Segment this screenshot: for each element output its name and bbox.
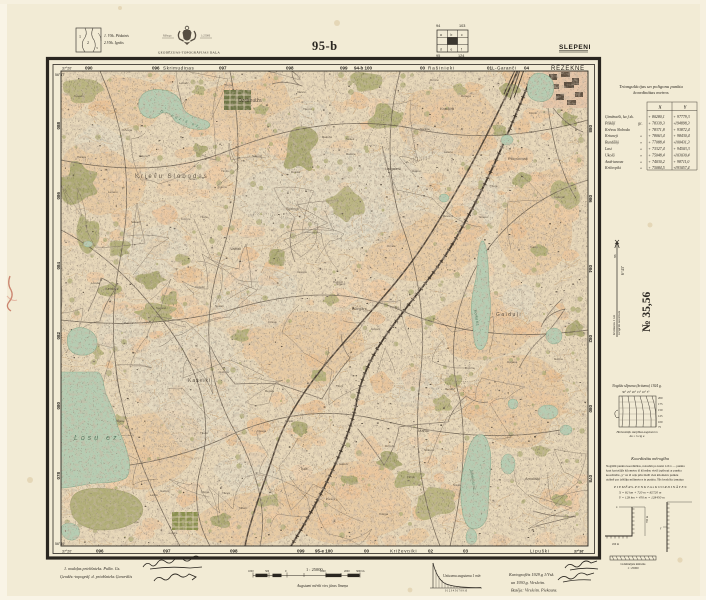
svg-text:+: +: [649, 115, 651, 119]
svg-text:Augstumi mērīti virs jūras līm: Augstumi mērīti virs jūras līmeņa: [296, 584, 348, 588]
svg-text:6°43': 6°43': [620, 266, 625, 275]
svg-text:200: 200: [658, 396, 663, 400]
svg-text:078: 078: [588, 475, 593, 483]
svg-text:080: 080: [588, 405, 593, 413]
svg-text:Rundāiķi: Rundāiķi: [604, 141, 619, 145]
svg-text:95: 95: [436, 54, 440, 58]
svg-text:Koordinātu mērogība: Koordinātu mērogība: [630, 456, 670, 461]
svg-text:da = h ctg a: da = h ctg a: [630, 434, 645, 438]
svg-text:86: 86: [613, 254, 617, 258]
svg-text:Bazēja: Virsleitn. Piekauns.: Bazēja: Virsleitn. Piekauns.: [511, 588, 557, 593]
svg-text:450 m: 450 m: [612, 543, 620, 546]
svg-text:+: +: [674, 160, 676, 164]
svg-text:Kartografēts 1929.g 1/Vsk.: Kartografēts 1929.g 1/Vsk.: [508, 572, 554, 577]
svg-text:e: e: [451, 48, 453, 52]
svg-text:097: 097: [219, 66, 227, 71]
svg-text:103: 103: [459, 24, 465, 28]
svg-text:Nogāžu slīpuma (kritumu) 1924: Nogāžu slīpuma (kritumu) 1924 g.: [611, 384, 662, 388]
svg-text:1000: 1000: [248, 570, 254, 573]
svg-text:+: +: [649, 141, 651, 145]
svg-text:096: 096: [96, 549, 104, 554]
svg-text:720 m: 720 m: [646, 515, 649, 523]
svg-text:Kriuneji: Kriuneji: [604, 134, 618, 138]
svg-text:Y = 128 km + 450 m = 128450 m: Y = 128 km + 450 m = 128450 m: [619, 496, 665, 500]
svg-text:a: a: [440, 33, 442, 37]
svg-text:P I E M Ē R S. P U N K T A: P I E M Ē R S. P U N K T A x K O O R D I…: [613, 484, 687, 489]
svg-text:gc.: gc.: [638, 121, 643, 125]
svg-text:37°20': 37°20': [62, 67, 72, 71]
svg-text:082: 082: [56, 331, 61, 339]
svg-text:099: 099: [297, 549, 305, 554]
svg-text:Plikāļi: Plikāļi: [604, 121, 615, 125]
svg-text:atzīmē par izblāķu milimetr: atzīmē par izblāķu milimetros in punktu.…: [606, 477, 684, 482]
svg-text:1: 1: [79, 34, 81, 39]
svg-text:1. nodaļas priekšnieks. Pul: 1. nodaļas priekšnieks. Pulkv. Gs.: [64, 566, 120, 571]
svg-text:097: 097: [163, 549, 171, 554]
svg-text:1:25000: 1:25000: [201, 35, 211, 38]
svg-text:1 : 25000: 1 : 25000: [627, 566, 639, 570]
svg-text:+: +: [649, 160, 651, 164]
svg-text:00: 00: [364, 549, 370, 554]
svg-text:100: 100: [658, 420, 663, 424]
svg-text:1000: 1000: [320, 570, 326, 573]
svg-text:f: f: [461, 48, 462, 52]
svg-text:95-e 100: 95-e 100: [315, 549, 333, 554]
svg-text:+: +: [674, 115, 676, 119]
svg-text:Rašinieki: Rašinieki: [428, 66, 455, 71]
svg-text:04: 04: [524, 66, 530, 71]
svg-text:Izvilkums 1 km: Izvilkums 1 km: [612, 314, 616, 336]
svg-text:0 1 2 3 4 5 6 7 8 9 1: 0 1 2 3 4 5 6 7 8 9 10: [445, 590, 468, 593]
svg-text:078: 078: [56, 471, 61, 479]
svg-text:+: +: [674, 147, 676, 151]
svg-text:56°37': 56°37': [55, 73, 65, 77]
svg-text:30° 25° 20° 15° 10° 5°: 30° 25° 20° 15° 10° 5°: [622, 390, 650, 394]
svg-text:+: +: [674, 153, 676, 157]
svg-text:+: +: [674, 166, 676, 170]
svg-text:+: +: [674, 141, 676, 145]
svg-text:«: «: [640, 141, 642, 145]
svg-text:Ģeodēz.-topogrāf. d. priekšnie: Ģeodēz.-topogrāf. d. priekšnieks Ģenerāl…: [60, 574, 132, 579]
svg-text:+: +: [649, 153, 651, 157]
svg-text:+: +: [649, 121, 651, 125]
svg-text:Križevņiki: Križevņiki: [390, 549, 417, 554]
svg-text:«: «: [640, 134, 642, 138]
svg-text:1. VSk. Pēdainis: 1. VSk. Pēdainis: [104, 34, 129, 38]
svg-text:Krēsvu Sloboda: Krēsvu Sloboda: [604, 128, 630, 132]
svg-text:75: 75: [658, 425, 662, 429]
svg-text:+: +: [649, 147, 651, 151]
svg-text:+: +: [674, 134, 676, 138]
svg-text:«: «: [640, 160, 642, 164]
svg-text:«: «: [640, 153, 642, 157]
svg-text:080: 080: [56, 401, 61, 409]
svg-text:56°30': 56°30': [55, 542, 65, 546]
svg-text:d: d: [440, 48, 442, 52]
svg-text:084: 084: [588, 265, 593, 273]
svg-text:Grigriši novietots: Grigriši novietots: [617, 310, 621, 335]
svg-text:94: 94: [436, 24, 440, 28]
svg-text:+: +: [674, 121, 676, 125]
svg-text:096: 096: [152, 66, 160, 71]
svg-text:088: 088: [588, 125, 593, 133]
svg-text:090: 090: [85, 66, 93, 71]
svg-text:X = 82 km + 720 m = 82720 m: X = 82 km + 720 m = 82720 m: [618, 491, 662, 495]
svg-text:RĒZEKNE: RĒZEKNE: [551, 65, 585, 72]
svg-text:Triangulācijas un poligonu pun: Triangulācijas un poligonu punktu: [619, 84, 683, 89]
svg-text:+: +: [649, 134, 651, 138]
svg-text:37°20': 37°20': [62, 550, 72, 554]
svg-text:Krilovpiki: Krilovpiki: [604, 166, 621, 170]
svg-text:088: 088: [56, 121, 61, 129]
svg-text:082: 082: [588, 335, 593, 343]
svg-text:Lipuški: Lipuški: [530, 549, 550, 554]
svg-text:94-b 100: 94-b 100: [354, 66, 373, 71]
svg-text:koordinātas metros: koordinātas metros: [633, 90, 668, 95]
svg-text:500: 500: [265, 570, 270, 573]
svg-text:kaut kartotājās kilometru t: kaut kartotājās kilometru tā kā mūsu vie…: [606, 469, 682, 473]
svg-text:086: 086: [56, 191, 61, 199]
svg-text:2.VSk. Igrāts: 2.VSk. Igrāts: [104, 41, 124, 45]
svg-text:150: 150: [658, 408, 663, 412]
svg-text:L-Garanči: L-Garanči: [492, 66, 516, 71]
svg-text:+: +: [649, 166, 651, 170]
svg-text:Uzticamu augstuma 1 mēr.: Uzticamu augstuma 1 mēr.: [443, 574, 481, 578]
svg-text:95-b: 95-b: [312, 39, 338, 53]
svg-text:Mērogs: Mērogs: [163, 35, 172, 38]
svg-text:SLEPENI: SLEPENI: [559, 44, 591, 51]
svg-text:3000 m: 3000 m: [356, 570, 365, 573]
svg-text:084: 084: [56, 261, 61, 269]
svg-text:Ukolā: Ukolā: [605, 153, 615, 157]
svg-text:«: «: [640, 166, 642, 170]
svg-text:37°36': 37°36': [574, 550, 584, 554]
svg-text:3: 3: [96, 46, 98, 50]
svg-text:125: 125: [658, 414, 663, 418]
svg-text:un 1930.g. Virsleitn.: un 1930.g. Virsleitn.: [511, 580, 545, 585]
svg-text:124: 124: [458, 54, 464, 58]
svg-text:02: 02: [428, 549, 434, 554]
svg-text:+: +: [674, 128, 676, 132]
svg-text:«: «: [640, 147, 642, 151]
svg-text:099: 099: [340, 66, 348, 71]
svg-text:00: 00: [420, 66, 426, 71]
svg-text:175: 175: [658, 402, 663, 406]
svg-text:03: 03: [463, 549, 469, 554]
svg-text:Skrimudiņas: Skrimudiņas: [163, 66, 195, 71]
svg-text:2000: 2000: [344, 570, 350, 573]
svg-text:2: 2: [87, 40, 89, 45]
svg-text:ĢEODĒZIJAS-TOPOGRĀFIJAS DAĻA: ĢEODĒZIJAS-TOPOGRĀFIJAS DAĻA: [158, 50, 220, 55]
svg-text:Lasi: Lasi: [604, 147, 612, 151]
svg-text:№ 35,56: № 35,56: [641, 291, 653, 332]
svg-text:Andrianova: Andrianova: [604, 160, 623, 164]
svg-text:b: b: [451, 33, 453, 37]
svg-text:+: +: [649, 128, 651, 132]
svg-text:098: 098: [230, 549, 238, 554]
svg-text:086: 086: [588, 195, 593, 203]
svg-text:098: 098: [286, 66, 294, 71]
